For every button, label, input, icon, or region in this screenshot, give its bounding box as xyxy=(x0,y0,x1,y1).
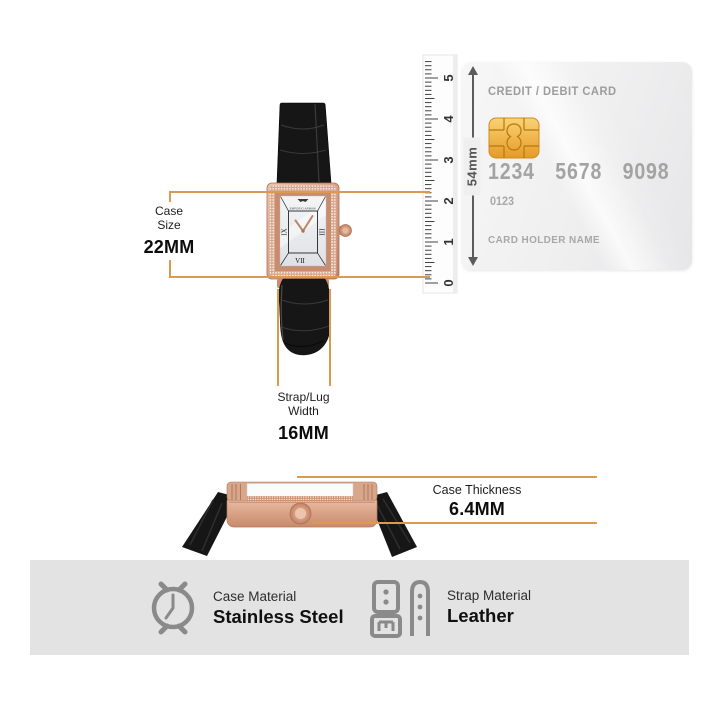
card-number: 1234 5678 9098 xyxy=(488,158,669,185)
watch-crown xyxy=(337,225,352,237)
strap-width-annotation: Strap/Lug Width 16MM xyxy=(258,390,349,444)
card-number-group: 1234 xyxy=(488,158,535,185)
spec-case-material: Case Material Stainless Steel xyxy=(146,580,344,636)
case-thickness-label: Case Thickness xyxy=(402,483,552,498)
watch-front-view: EMPORIO ARMANI IX III VII xyxy=(255,95,365,365)
card-title: CREDIT / DEBIT CARD xyxy=(488,84,616,98)
case-size-annotation: Case Size 22MM xyxy=(130,202,208,260)
materials-band: Case Material Stainless Steel xyxy=(30,560,689,655)
watch-strap-icon xyxy=(370,576,434,638)
case-material-label: Case Material xyxy=(213,588,344,606)
dial-brand-text: EMPORIO ARMANI xyxy=(290,207,317,211)
watch-side-view xyxy=(180,455,430,565)
case-material-value: Stainless Steel xyxy=(213,606,344,628)
strap-width-line-right xyxy=(329,289,331,386)
case-size-value: 22MM xyxy=(130,237,208,258)
svg-text:5: 5 xyxy=(441,74,456,81)
card-number-group: 5678 xyxy=(555,158,602,185)
svg-text:1: 1 xyxy=(441,238,456,245)
numeral-bottom: VII xyxy=(295,257,305,265)
watch-dial: EMPORIO ARMANI IX III VII xyxy=(280,196,326,266)
strap-width-label-1: Strap/Lug xyxy=(258,390,349,404)
watch-strap-top xyxy=(277,103,331,183)
watch-case-icon xyxy=(146,580,200,636)
svg-text:0: 0 xyxy=(441,279,456,286)
case-size-line-top xyxy=(169,191,430,193)
card-chip-icon xyxy=(488,117,540,159)
card-holder-label: CARD HOLDER NAME xyxy=(488,234,600,246)
strap-width-line-left xyxy=(277,289,279,386)
case-thickness-line-bottom xyxy=(312,522,597,524)
case-thickness-line-top xyxy=(297,476,597,478)
credit-card: 54mm CREDIT / DEBIT CARD 1234 5678 9098 … xyxy=(462,62,692,270)
side-crown xyxy=(290,503,311,524)
strap-width-label-2: Width xyxy=(258,404,349,418)
strap-material-label: Strap Material xyxy=(447,587,531,605)
numeral-right: III xyxy=(318,229,326,237)
strap-width-value: 16MM xyxy=(258,423,349,444)
ruler-scale: 0 1 2 3 4 5 xyxy=(420,52,464,296)
watch-strap-bottom xyxy=(277,279,331,355)
watch-spec-infographic: EMPORIO ARMANI IX III VII xyxy=(0,0,720,721)
card-height-label: 54mm xyxy=(464,138,481,196)
case-size-line-bottom xyxy=(169,276,430,278)
numeral-left: IX xyxy=(281,228,289,235)
svg-text:3: 3 xyxy=(441,156,456,163)
card-number-group: 9098 xyxy=(623,158,670,185)
case-thickness-annotation: Case Thickness 6.4MM xyxy=(402,483,552,520)
svg-text:2: 2 xyxy=(441,197,456,204)
case-size-label-2: Size xyxy=(130,218,208,232)
card-aux-number: 0123 xyxy=(490,194,514,208)
case-size-label-1: Case xyxy=(130,204,208,218)
strap-material-value: Leather xyxy=(447,605,531,627)
svg-text:4: 4 xyxy=(441,115,456,123)
case-thickness-value: 6.4MM xyxy=(402,499,552,520)
spec-strap-material: Strap Material Leather xyxy=(370,576,531,638)
